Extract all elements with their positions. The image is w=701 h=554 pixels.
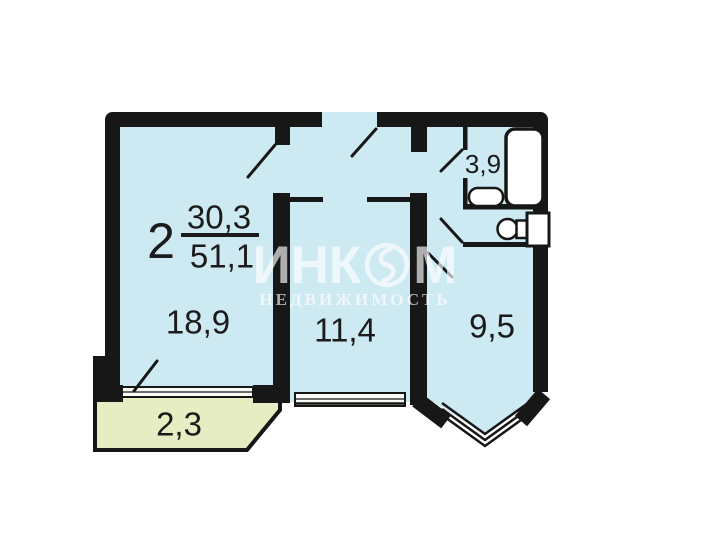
wall-living-hall [273,193,290,403]
living-area-label: 30,3 [187,201,251,234]
bathroom-wall-lower [463,178,468,207]
area-fraction-bar [181,233,259,237]
toilet-tank [517,221,528,239]
living-room-window [121,387,253,397]
bedroom-area-label: 11,4 [314,314,376,347]
living-room-area-label: 18,9 [166,306,230,339]
bathroom-wall-upper [463,127,468,150]
bedroom-window [295,393,405,406]
partition-hall-bedroom-right [367,197,410,202]
sink [469,188,503,206]
washing-machine [527,213,549,246]
balcony-area-label: 2,3 [156,408,202,441]
wall-bedroom-kitchen-stub [411,127,427,152]
floor-plan-drawing [0,0,701,554]
rooms-count-label: 2 [147,216,175,266]
bathtub [506,129,543,206]
wall-bedroom-kitchen [410,193,427,405]
total-area-label: 51,1 [190,240,254,273]
kitchen-area-label: 9,5 [469,310,515,343]
bathroom-area-label: 3,9 [465,151,501,177]
floor-plan: 2 30,3 51,1 18,9 11,4 9,5 3,9 2,3 ИНК М … [0,0,701,554]
south-wall-corner-left [93,385,123,402]
wc-south-wall [463,242,533,247]
wall-living-hall-stub [275,127,290,145]
toilet-bowl [498,219,518,239]
partition-hall-bedroom-left [290,197,323,202]
